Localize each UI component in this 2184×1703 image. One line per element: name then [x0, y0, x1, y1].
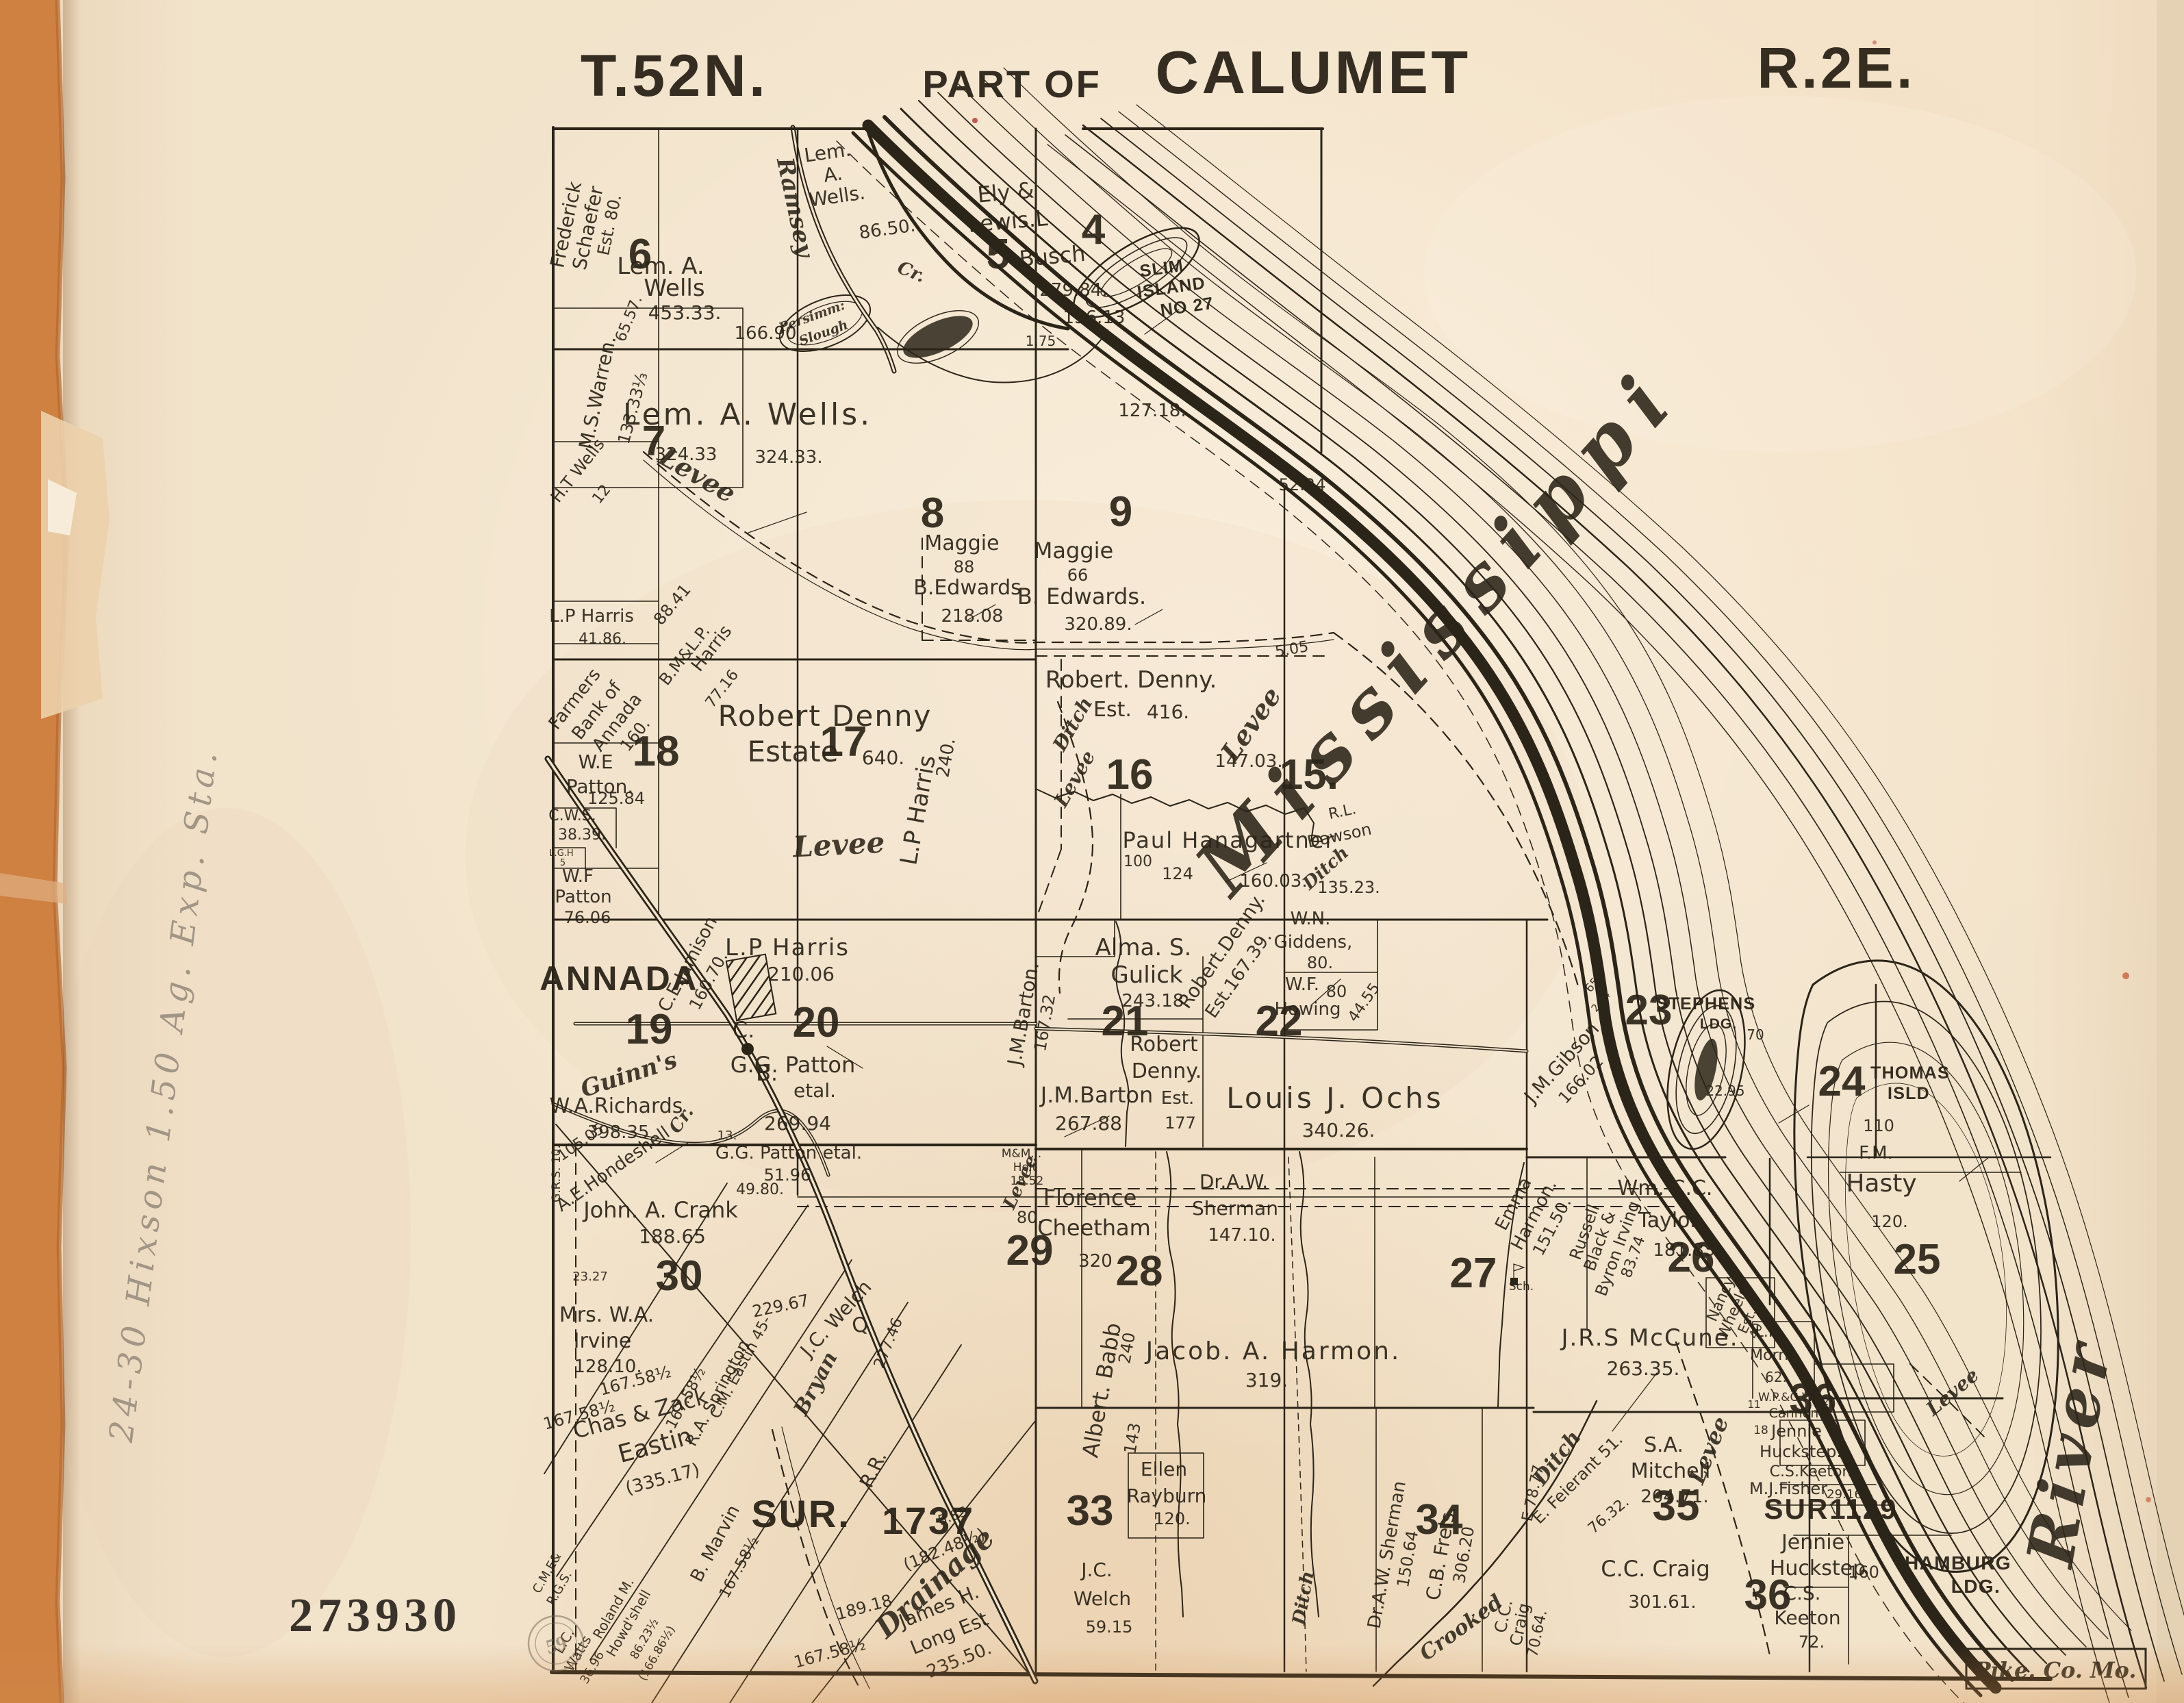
- parcel-label: Cheetham: [1037, 1215, 1151, 1241]
- railroad-label: R.R.: [855, 1448, 891, 1491]
- parcel-label: C.S.: [1783, 1582, 1820, 1604]
- parcel-label: 18: [1753, 1424, 1768, 1437]
- parcel-label: 147.10.: [1208, 1225, 1275, 1246]
- parcel-label: Maggie: [1034, 538, 1113, 564]
- landing-label-stephens: LDG.: [1700, 1016, 1737, 1032]
- parcel-label: W.F.: [1285, 974, 1319, 995]
- parcel-label: 38.39.: [558, 827, 606, 844]
- parcel-label: Wells.: [808, 181, 867, 212]
- 16: 16: [1106, 751, 1154, 798]
- parcel-label: 124: [1162, 864, 1193, 883]
- parcel-label: 52.24: [1279, 475, 1326, 494]
- parcel-label: Giddens,: [1274, 932, 1353, 953]
- parcel-label: 204.71.: [1640, 1487, 1708, 1507]
- parcel-label: 143: [1120, 1422, 1145, 1456]
- landing-label-hamburg: LDG.: [1951, 1576, 2001, 1597]
- river-label: River: [2012, 1331, 2127, 1574]
- 25: 25: [1894, 1236, 1941, 1283]
- ditch-label: Ditch: [1288, 1569, 1318, 1627]
- parcel-label: L.P Harris: [549, 606, 634, 627]
- parcel-label: Ellen: [1141, 1458, 1187, 1480]
- parcel-label: 320.89.: [1064, 614, 1132, 635]
- parcel-label: Wells: [644, 275, 704, 302]
- parcel-label: 120.: [1154, 1509, 1190, 1528]
- parcel-label: 127.18.: [1118, 401, 1186, 421]
- parcel-label: W.E: [578, 750, 613, 773]
- parcel-label: 88: [954, 557, 975, 577]
- parcel-label: Dr.A.W.: [1199, 1170, 1268, 1193]
- title-part-of: PART OF: [922, 62, 1101, 105]
- parcel-label: 136.13: [1063, 307, 1126, 328]
- parcel-label: C.S.Keeton.: [1770, 1463, 1857, 1480]
- parcel-label: 125.84: [587, 789, 645, 808]
- parcel-label: Sch.: [1509, 1280, 1534, 1294]
- parcel-label: W.A.Richards: [550, 1094, 683, 1118]
- 5: 5: [987, 231, 1010, 278]
- parcel-label: W.P.&C.W.: [1758, 1391, 1816, 1404]
- parcel-label: Lem. A. Wells.: [623, 397, 872, 432]
- parcel-label: 160: [1848, 1563, 1879, 1582]
- survey-label: 1129: [1829, 1493, 1898, 1525]
- 28: 28: [1116, 1248, 1163, 1295]
- parcel-label: S.A.: [1644, 1433, 1684, 1457]
- parcel-label: Jennie: [1780, 1530, 1844, 1554]
- parcel-label: G.G. Patton etal.: [715, 1143, 862, 1163]
- parcel-label: 12: [589, 481, 614, 507]
- parcel-label: 301.61.: [1628, 1592, 1696, 1613]
- parcel-label: J.C.: [1080, 1559, 1113, 1581]
- parcel-label: Howing: [1275, 999, 1341, 1020]
- parcel-label: Morris: [1750, 1347, 1796, 1364]
- parcel-label: Robert Denny: [718, 699, 932, 733]
- 9: 9: [1109, 488, 1132, 535]
- parcel-label: Busch: [1018, 240, 1087, 272]
- parcel-label: Alma. S.: [1095, 934, 1192, 961]
- stamp-number: 273930: [289, 1589, 461, 1642]
- creek-label-ramsey: Cr.: [894, 257, 928, 287]
- parcel-label: 49.80.: [736, 1181, 784, 1198]
- parcel-label: 640.: [862, 746, 904, 769]
- parcel-label: Irvine: [574, 1329, 632, 1353]
- parcel-label: B. Edwards.: [1017, 583, 1146, 609]
- title-township: T.52N.: [581, 43, 768, 109]
- parcel-label: Rayburn: [1127, 1485, 1207, 1507]
- parcel-label: Sherman: [1192, 1197, 1278, 1220]
- parcel-label: 22.95: [1705, 1083, 1744, 1099]
- 30: 30: [656, 1252, 703, 1300]
- landing-label-stephens: STEPHENS: [1657, 994, 1756, 1013]
- railroad-label: B.: [756, 1060, 778, 1086]
- parcel-label: 181.83.: [1653, 1240, 1720, 1261]
- torn-tape-patch: [41, 411, 110, 719]
- plat-map: 65478918171615.1920212223243029282726253…: [0, 0, 2184, 1703]
- survey-label: SUR: [1764, 1493, 1829, 1525]
- parcel-label: 263.35.: [1607, 1357, 1680, 1380]
- parcel-label: Wm. C.C.: [1618, 1176, 1713, 1200]
- scanned-plat-map-page: 65478918171615.1920212223243029282726253…: [0, 0, 2184, 1703]
- parcel-label: 135.23.: [1317, 878, 1380, 897]
- parcel-label: 62.: [1765, 1369, 1787, 1385]
- parcel-label: 41.86.: [579, 631, 626, 648]
- parcel-label: 59.15: [1086, 1617, 1133, 1637]
- parcel-label: B.Edwards: [913, 576, 1021, 600]
- parcel-label: Welch: [1074, 1587, 1131, 1610]
- parcel-label: W.N.: [1291, 909, 1331, 929]
- school-flag: [1514, 1264, 1524, 1278]
- landing-label-hamburg: HAMBURG: [1905, 1552, 2011, 1574]
- parcel-label: Louis J. Ochs: [1226, 1081, 1444, 1115]
- 24: 24: [1818, 1058, 1866, 1105]
- parcel-label: Gulick: [1110, 961, 1182, 989]
- parcel-label: 453.33.: [648, 301, 722, 324]
- railroad-label: Bryan: [789, 1348, 842, 1420]
- bottom-shadow-band: [0, 1643, 2184, 1703]
- parcel-label: W.F: [562, 866, 594, 887]
- title-range: R.2E.: [1757, 36, 1915, 100]
- parcel-label: 210.06: [767, 963, 835, 985]
- parcel-label: 66: [1067, 566, 1089, 585]
- parcel-label: Maggie: [924, 531, 999, 555]
- parcel-label: F.M.: [1859, 1143, 1893, 1163]
- parcel-label: C.C. Craig: [1601, 1556, 1710, 1582]
- parcel-label: 1.75: [1026, 333, 1056, 349]
- map-titles: T.52N. PART OF CALUMET R.2E.: [581, 36, 1916, 109]
- parcel-label: 80: [1326, 982, 1347, 1001]
- parcel-label: (335.17): [623, 1459, 702, 1499]
- parcel-label: 42: [1816, 1396, 1829, 1408]
- levee-label: Levee: [791, 826, 885, 864]
- parcel-label: Huckstep.: [1760, 1442, 1842, 1461]
- levee-label: Levee: [1921, 1363, 1983, 1420]
- parcel-label: J.M.Barton: [1039, 1082, 1154, 1108]
- parcel-label: 100: [1123, 853, 1152, 870]
- parcel-label: 110: [1863, 1116, 1894, 1135]
- island-label-thomas: THOMAS: [1870, 1063, 1950, 1083]
- parcel-label: 279.84.: [1039, 280, 1107, 301]
- parcel-label: C.W.S.: [548, 807, 596, 824]
- parcel-label: Patton: [555, 887, 611, 907]
- parcel-label: 267.88: [1055, 1112, 1122, 1135]
- parcel-label: M.S.Warren.: [574, 333, 620, 451]
- parcel-label: Taylor.: [1637, 1209, 1703, 1233]
- parcel-label: Estate: [748, 735, 839, 768]
- parcel-label: Florence: [1043, 1185, 1137, 1211]
- parcel-label: Robert. Denny.: [1045, 666, 1217, 694]
- survey-label: 1737: [882, 1499, 975, 1542]
- parcel-label: J.R.S McCune.: [1560, 1324, 1738, 1352]
- 8: 8: [921, 490, 944, 537]
- parcel-label: 177: [1165, 1113, 1196, 1133]
- parcel-label: G.G. Patton: [731, 1052, 856, 1078]
- parcel-label: 76.32.: [1585, 1493, 1633, 1537]
- parcel-label: 80.: [1017, 1208, 1043, 1227]
- parcel-label: 80.: [1307, 953, 1333, 972]
- parcel-label: G.R.S. 10.: [550, 1145, 563, 1202]
- parcel-label: Keeton: [1774, 1606, 1840, 1629]
- title-name: CALUMET: [1156, 38, 1471, 106]
- parcel-label: 13.: [718, 1128, 737, 1143]
- survey-label: SUR.: [752, 1492, 851, 1535]
- parcel-label: Mrs. W.A.: [559, 1303, 654, 1327]
- parcel-label: 319.: [1245, 1369, 1288, 1391]
- parcel-label: 11: [1747, 1398, 1760, 1411]
- parcel-label: 70: [1747, 1026, 1764, 1043]
- parcel-label: 76.06: [564, 908, 611, 927]
- 19: 19: [626, 1006, 673, 1053]
- 33: 33: [1067, 1487, 1114, 1535]
- parcel-label: 23.27: [572, 1270, 608, 1284]
- parcel-label: 218.08: [941, 606, 1004, 627]
- 20: 20: [793, 999, 840, 1046]
- parcel-label: Lem.: [802, 138, 852, 166]
- parcel-label: Ely &: [976, 177, 1035, 207]
- parcel-label: Denny.: [1132, 1059, 1202, 1083]
- parcel-label: Est.: [1093, 698, 1132, 722]
- parcel-label: 269.94: [764, 1112, 831, 1135]
- levee-label: Levee: [1684, 1413, 1734, 1488]
- parcel-label: 340.26.: [1302, 1119, 1375, 1141]
- parcel-label: Est.: [1161, 1088, 1194, 1109]
- parcel-label: 120.: [1871, 1212, 1907, 1231]
- parcel-label: Cannon: [1769, 1406, 1819, 1421]
- 27: 27: [1450, 1250, 1497, 1297]
- parcel-label: A.: [822, 162, 844, 187]
- parcel-label: 86.50.: [858, 215, 917, 243]
- railroad-label: C.: [733, 1017, 755, 1043]
- parcel-label: Jacob. A. Harmon.: [1145, 1337, 1401, 1365]
- parcel-label: L.R.: [1755, 1324, 1783, 1341]
- parcel-label: L.G.H: [549, 848, 573, 859]
- parcel-label: 65.57.: [612, 293, 646, 344]
- parcel-label: 320: [1078, 1251, 1113, 1272]
- parcel-label: Hasty: [1846, 1170, 1916, 1198]
- parcel-label: Robert: [1130, 1033, 1198, 1057]
- parcel-label: 188.65: [639, 1225, 706, 1248]
- parcel-label: etal.: [793, 1079, 836, 1102]
- island-label-thomas: ISLD: [1888, 1084, 1930, 1103]
- parcel-label: John. A. Crank: [582, 1197, 738, 1223]
- parcel-label: Jennie: [1770, 1422, 1822, 1441]
- parcel-label: 324.33.: [754, 447, 822, 468]
- parcel-label: 416.: [1147, 701, 1189, 723]
- 4: 4: [1082, 206, 1106, 253]
- parcel-label: L.P Harris: [725, 934, 850, 961]
